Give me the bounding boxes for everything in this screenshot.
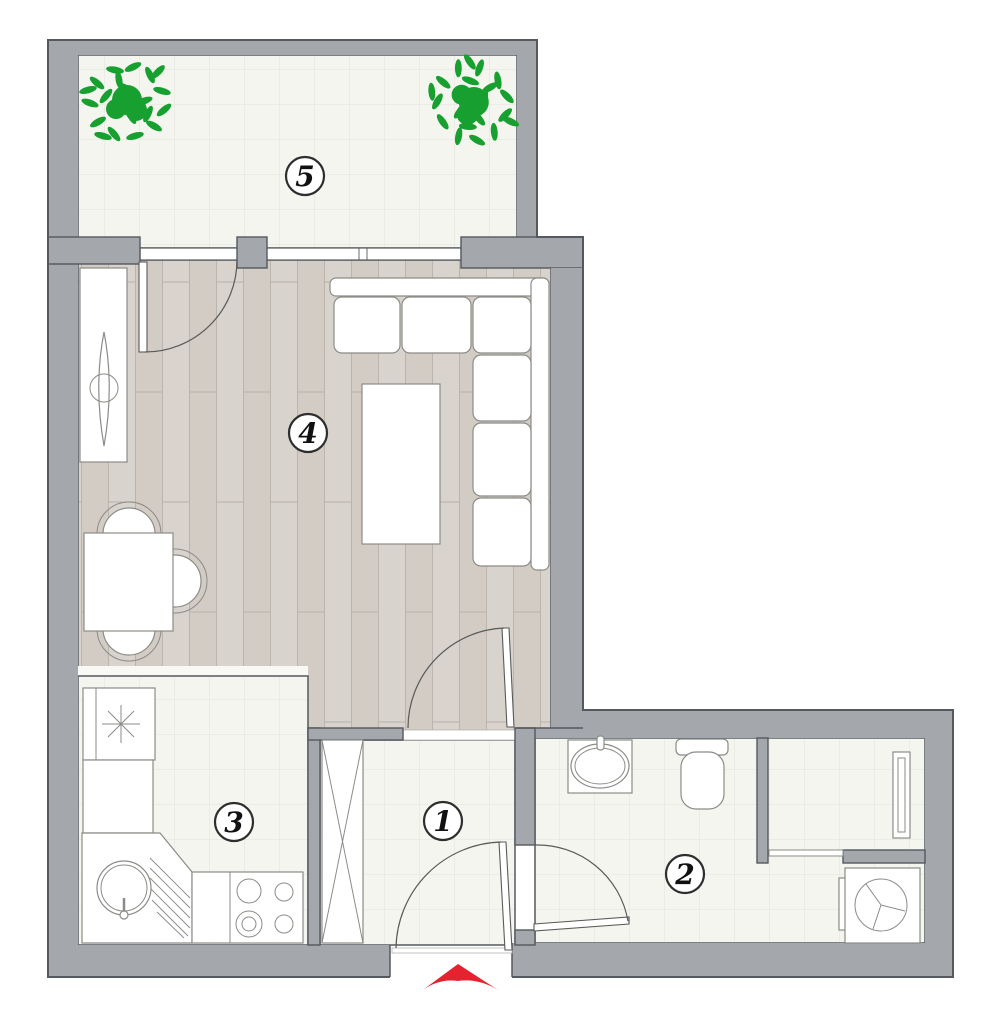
hall-doorway-threshold xyxy=(403,730,515,740)
room-label-3: 3 xyxy=(215,803,253,841)
coffee-table xyxy=(362,384,440,544)
entrance-arrow-icon xyxy=(420,964,498,992)
kitchen-counter xyxy=(83,760,153,833)
room-label-2: 2 xyxy=(666,855,704,893)
sofa-cushion xyxy=(473,355,531,421)
room-number: 1 xyxy=(433,805,452,838)
sofa-cushion xyxy=(334,297,400,353)
wall-hall-bath xyxy=(515,728,535,845)
window-pillar xyxy=(237,237,267,268)
wall-hall-bath-stub xyxy=(515,930,535,945)
wall-bottom-left xyxy=(48,945,390,977)
wall-top xyxy=(48,40,537,55)
floor-plan: 5 4 3 1 2 xyxy=(0,0,996,1024)
wall-hall-top xyxy=(308,728,403,740)
window-sill xyxy=(140,248,461,260)
wall-left xyxy=(48,40,78,977)
sofa-cushion xyxy=(473,423,531,496)
hall-furniture xyxy=(322,740,363,943)
kitchen-floor-border xyxy=(78,666,308,676)
wall-terrace-bottom-left xyxy=(48,237,140,264)
wall-bath-partition xyxy=(757,738,768,863)
dining-table xyxy=(84,533,173,631)
room-label-5: 5 xyxy=(286,157,324,195)
terrace-floor xyxy=(78,55,517,248)
wall-niche-bottom xyxy=(843,850,925,863)
wall-right xyxy=(925,710,953,977)
room-number: 4 xyxy=(298,417,317,450)
shower-glass-partition xyxy=(769,850,843,856)
entrance-threshold xyxy=(392,948,512,953)
wall-bottom-right xyxy=(512,943,953,977)
wall-kitchen-hall xyxy=(308,728,320,945)
toilet-bowl xyxy=(681,752,724,809)
sofa-cushion xyxy=(473,297,531,353)
room-number: 5 xyxy=(295,160,314,193)
wall-living-right xyxy=(551,268,583,728)
sofa-cushion xyxy=(402,297,471,353)
sofa-back-right xyxy=(531,278,549,570)
kitchen-faucet-base xyxy=(120,911,128,919)
bathroom-faucet-icon xyxy=(597,736,604,750)
room-number: 3 xyxy=(224,806,243,839)
wall-terrace-right xyxy=(517,40,537,268)
terrace-windows xyxy=(140,248,461,260)
wall-terrace-bottom-right xyxy=(461,237,583,268)
terrace-door-leaf xyxy=(139,262,147,352)
floor-plan-svg: 5 4 3 1 2 xyxy=(0,0,996,1024)
room-number: 2 xyxy=(674,858,694,891)
sofa-cushion xyxy=(473,498,531,566)
room-label-4: 4 xyxy=(289,414,327,452)
room-label-1: 1 xyxy=(424,802,462,840)
radiator xyxy=(893,752,910,838)
wall-mid-horizontal xyxy=(583,710,953,738)
sofa-back-top xyxy=(330,278,549,296)
